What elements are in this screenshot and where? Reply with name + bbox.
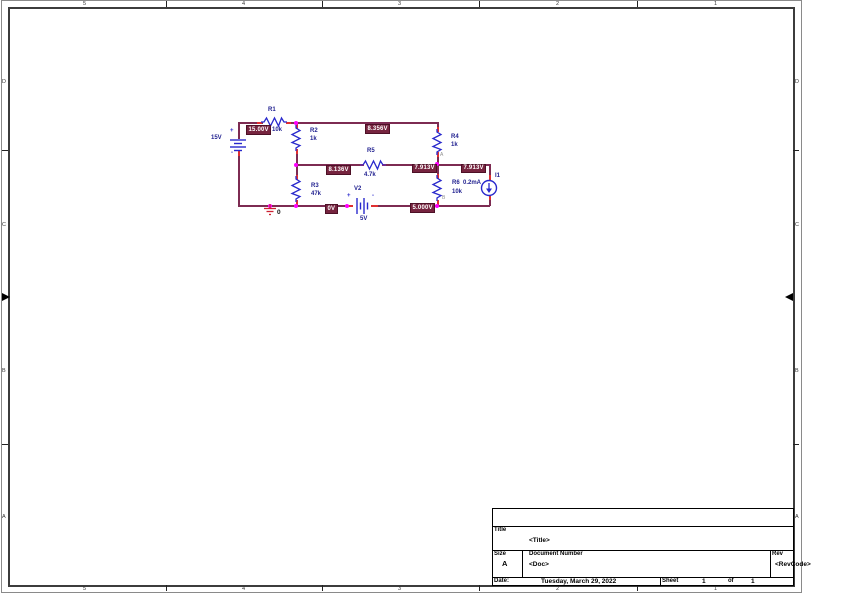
title-block-line	[492, 577, 793, 578]
ruler-tick	[322, 585, 323, 591]
ruler-tick	[479, 585, 480, 591]
ruler-top-2: 2	[556, 1, 559, 7]
r5-value[interactable]: 4.7k	[364, 172, 376, 179]
resistor-r2[interactable]	[291, 125, 301, 151]
bias-label-top-node[interactable]: 8.356V	[365, 124, 390, 134]
sheet-label: Sheet	[662, 578, 678, 585]
junction-dot	[345, 204, 349, 208]
junction-dot	[294, 121, 298, 125]
title-block-line	[770, 550, 771, 577]
ruler-left-d: D	[2, 79, 6, 85]
r1-value[interactable]: 10k	[272, 127, 282, 134]
document-number-label: Document Number	[529, 551, 583, 558]
bias-label-mid-right-node[interactable]: 7.913V	[412, 164, 437, 174]
v2-plus-sign: +	[347, 193, 351, 199]
ruler-tick	[793, 444, 799, 445]
ruler-right-d: D	[795, 79, 799, 85]
ruler-tick	[637, 1, 638, 7]
resistor-r5[interactable]	[360, 160, 386, 170]
size-value: A	[502, 560, 507, 567]
ruler-tick	[2, 444, 8, 445]
r4-designator[interactable]: R4	[451, 134, 459, 141]
i1-designator[interactable]: I1	[495, 173, 500, 180]
title-block-line	[492, 526, 793, 527]
ruler-tick	[2, 150, 8, 151]
size-label: Size	[494, 551, 506, 558]
title-block	[492, 508, 794, 586]
junction-dot	[435, 204, 439, 208]
date-label: Date:	[494, 578, 509, 585]
r2-designator[interactable]: R2	[310, 128, 318, 135]
ground-label: 0	[277, 209, 281, 216]
v1-value[interactable]: 15V	[211, 135, 222, 142]
junction-dot	[294, 163, 298, 167]
ruler-tick	[479, 1, 480, 7]
ruler-tick	[322, 1, 323, 7]
bias-label-bottom-left-node[interactable]: 0V	[325, 204, 338, 214]
ruler-right-c: C	[795, 222, 799, 228]
ruler-bottom-5: 5	[83, 586, 86, 592]
v1-plus-sign: +	[230, 128, 234, 134]
bias-label-mid-left-node[interactable]: 8.136V	[326, 165, 351, 175]
ruler-left-c: C	[2, 222, 6, 228]
r6-value[interactable]: 10k	[452, 189, 462, 196]
current-source-i1[interactable]	[480, 179, 498, 197]
schematic-page: 5 4 3 2 1 5 4 3 2 1 D C B A D C B A	[0, 0, 848, 599]
ground-symbol[interactable]	[263, 204, 278, 217]
v1-minus-sign: -	[231, 150, 233, 156]
ruler-right-b: B	[795, 368, 799, 374]
ruler-top-1: 1	[714, 1, 717, 7]
ruler-tick	[166, 1, 167, 7]
bias-label-bottom-right-node[interactable]: 5.000V	[410, 203, 435, 213]
r3-designator[interactable]: R3	[311, 183, 319, 190]
ruler-bottom-3: 3	[398, 586, 401, 592]
resistor-r3[interactable]	[291, 176, 301, 202]
ruler-bottom-1: 1	[714, 586, 717, 592]
junction-dot	[294, 204, 298, 208]
bias-label-source-node[interactable]: 15.00V	[246, 125, 271, 135]
ruler-top-5: 5	[83, 1, 86, 7]
rev-label: Rev	[772, 551, 783, 558]
ruler-left-a: A	[2, 514, 6, 520]
sheet-total[interactable]: 1	[751, 578, 755, 585]
r2-value[interactable]: 1k	[310, 136, 317, 143]
title-value[interactable]: <Title>	[529, 537, 550, 544]
ruler-tick	[793, 150, 799, 151]
r3-value[interactable]: 47k	[311, 191, 321, 198]
r6-designator[interactable]: R6	[452, 180, 460, 187]
ruler-right-a: A	[795, 514, 799, 520]
title-block-line	[522, 550, 523, 577]
wire-top-right[interactable]	[287, 122, 437, 124]
resistor-r6[interactable]	[432, 175, 442, 201]
date-value[interactable]: Tuesday, March 29, 2022	[541, 578, 616, 585]
r4-value[interactable]: 1k	[451, 142, 458, 149]
ruler-bottom-4: 4	[242, 586, 245, 592]
sheet-number[interactable]: 1	[702, 578, 706, 585]
ruler-tick	[166, 585, 167, 591]
v2-designator[interactable]: V2	[354, 186, 361, 193]
node-label-a: A	[440, 153, 443, 158]
v2-minus-sign: -	[372, 193, 374, 199]
title-block-line	[660, 577, 661, 585]
ruler-top-4: 4	[242, 1, 245, 7]
wire-v1-bottom[interactable]	[238, 155, 240, 206]
frame-center-arrow-right	[785, 293, 793, 301]
v2-value[interactable]: 5V	[360, 216, 367, 223]
frame-center-arrow-left	[2, 293, 10, 301]
node-label-b: B	[442, 196, 445, 201]
ruler-left-b: B	[2, 368, 6, 374]
ruler-bottom-2: 2	[556, 586, 559, 592]
sheet-inner-border	[8, 7, 795, 587]
rev-value[interactable]: <RevCode>	[775, 561, 811, 568]
sheet-of-label: of	[728, 578, 734, 585]
i1-value[interactable]: 0.2mA	[463, 180, 481, 187]
r1-designator[interactable]: R1	[268, 107, 276, 114]
title-label: Title	[494, 527, 506, 534]
resistor-r4[interactable]	[432, 129, 442, 155]
r5-designator[interactable]: R5	[367, 148, 375, 155]
ruler-top-3: 3	[398, 1, 401, 7]
bias-label-i1-branch-node[interactable]: 7.913V	[461, 164, 486, 174]
document-number-value[interactable]: <Doc>	[529, 561, 549, 568]
